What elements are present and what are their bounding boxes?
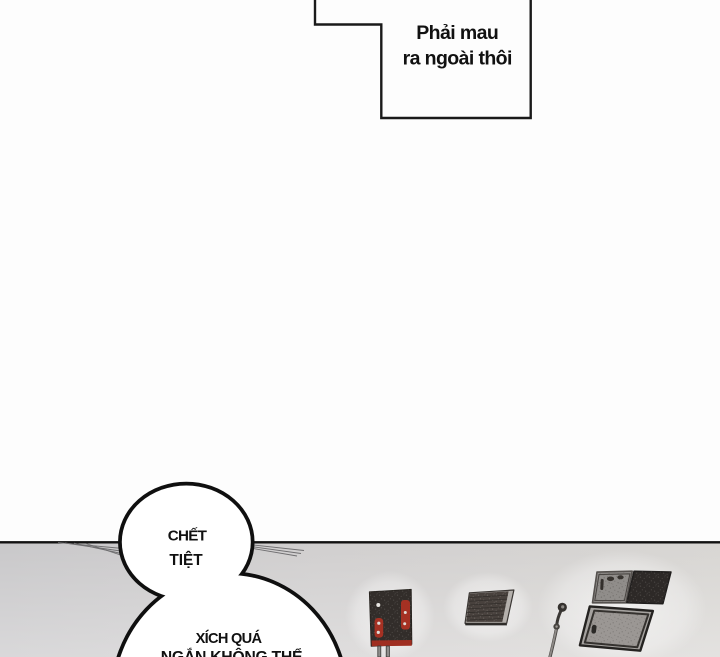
svg-text:ra ngoài thôi: ra ngoài thôi <box>403 47 512 69</box>
svg-text:CHẾT: CHẾT <box>168 528 208 545</box>
svg-text:NGẮN KHÔNG THỂ: NGẮN KHÔNG THỂ <box>161 647 302 657</box>
svg-text:XÍCH QUÁ: XÍCH QUÁ <box>196 630 263 647</box>
svg-text:TIỆT: TIỆT <box>169 551 203 569</box>
svg-text:Phải mau: Phải mau <box>416 22 498 44</box>
